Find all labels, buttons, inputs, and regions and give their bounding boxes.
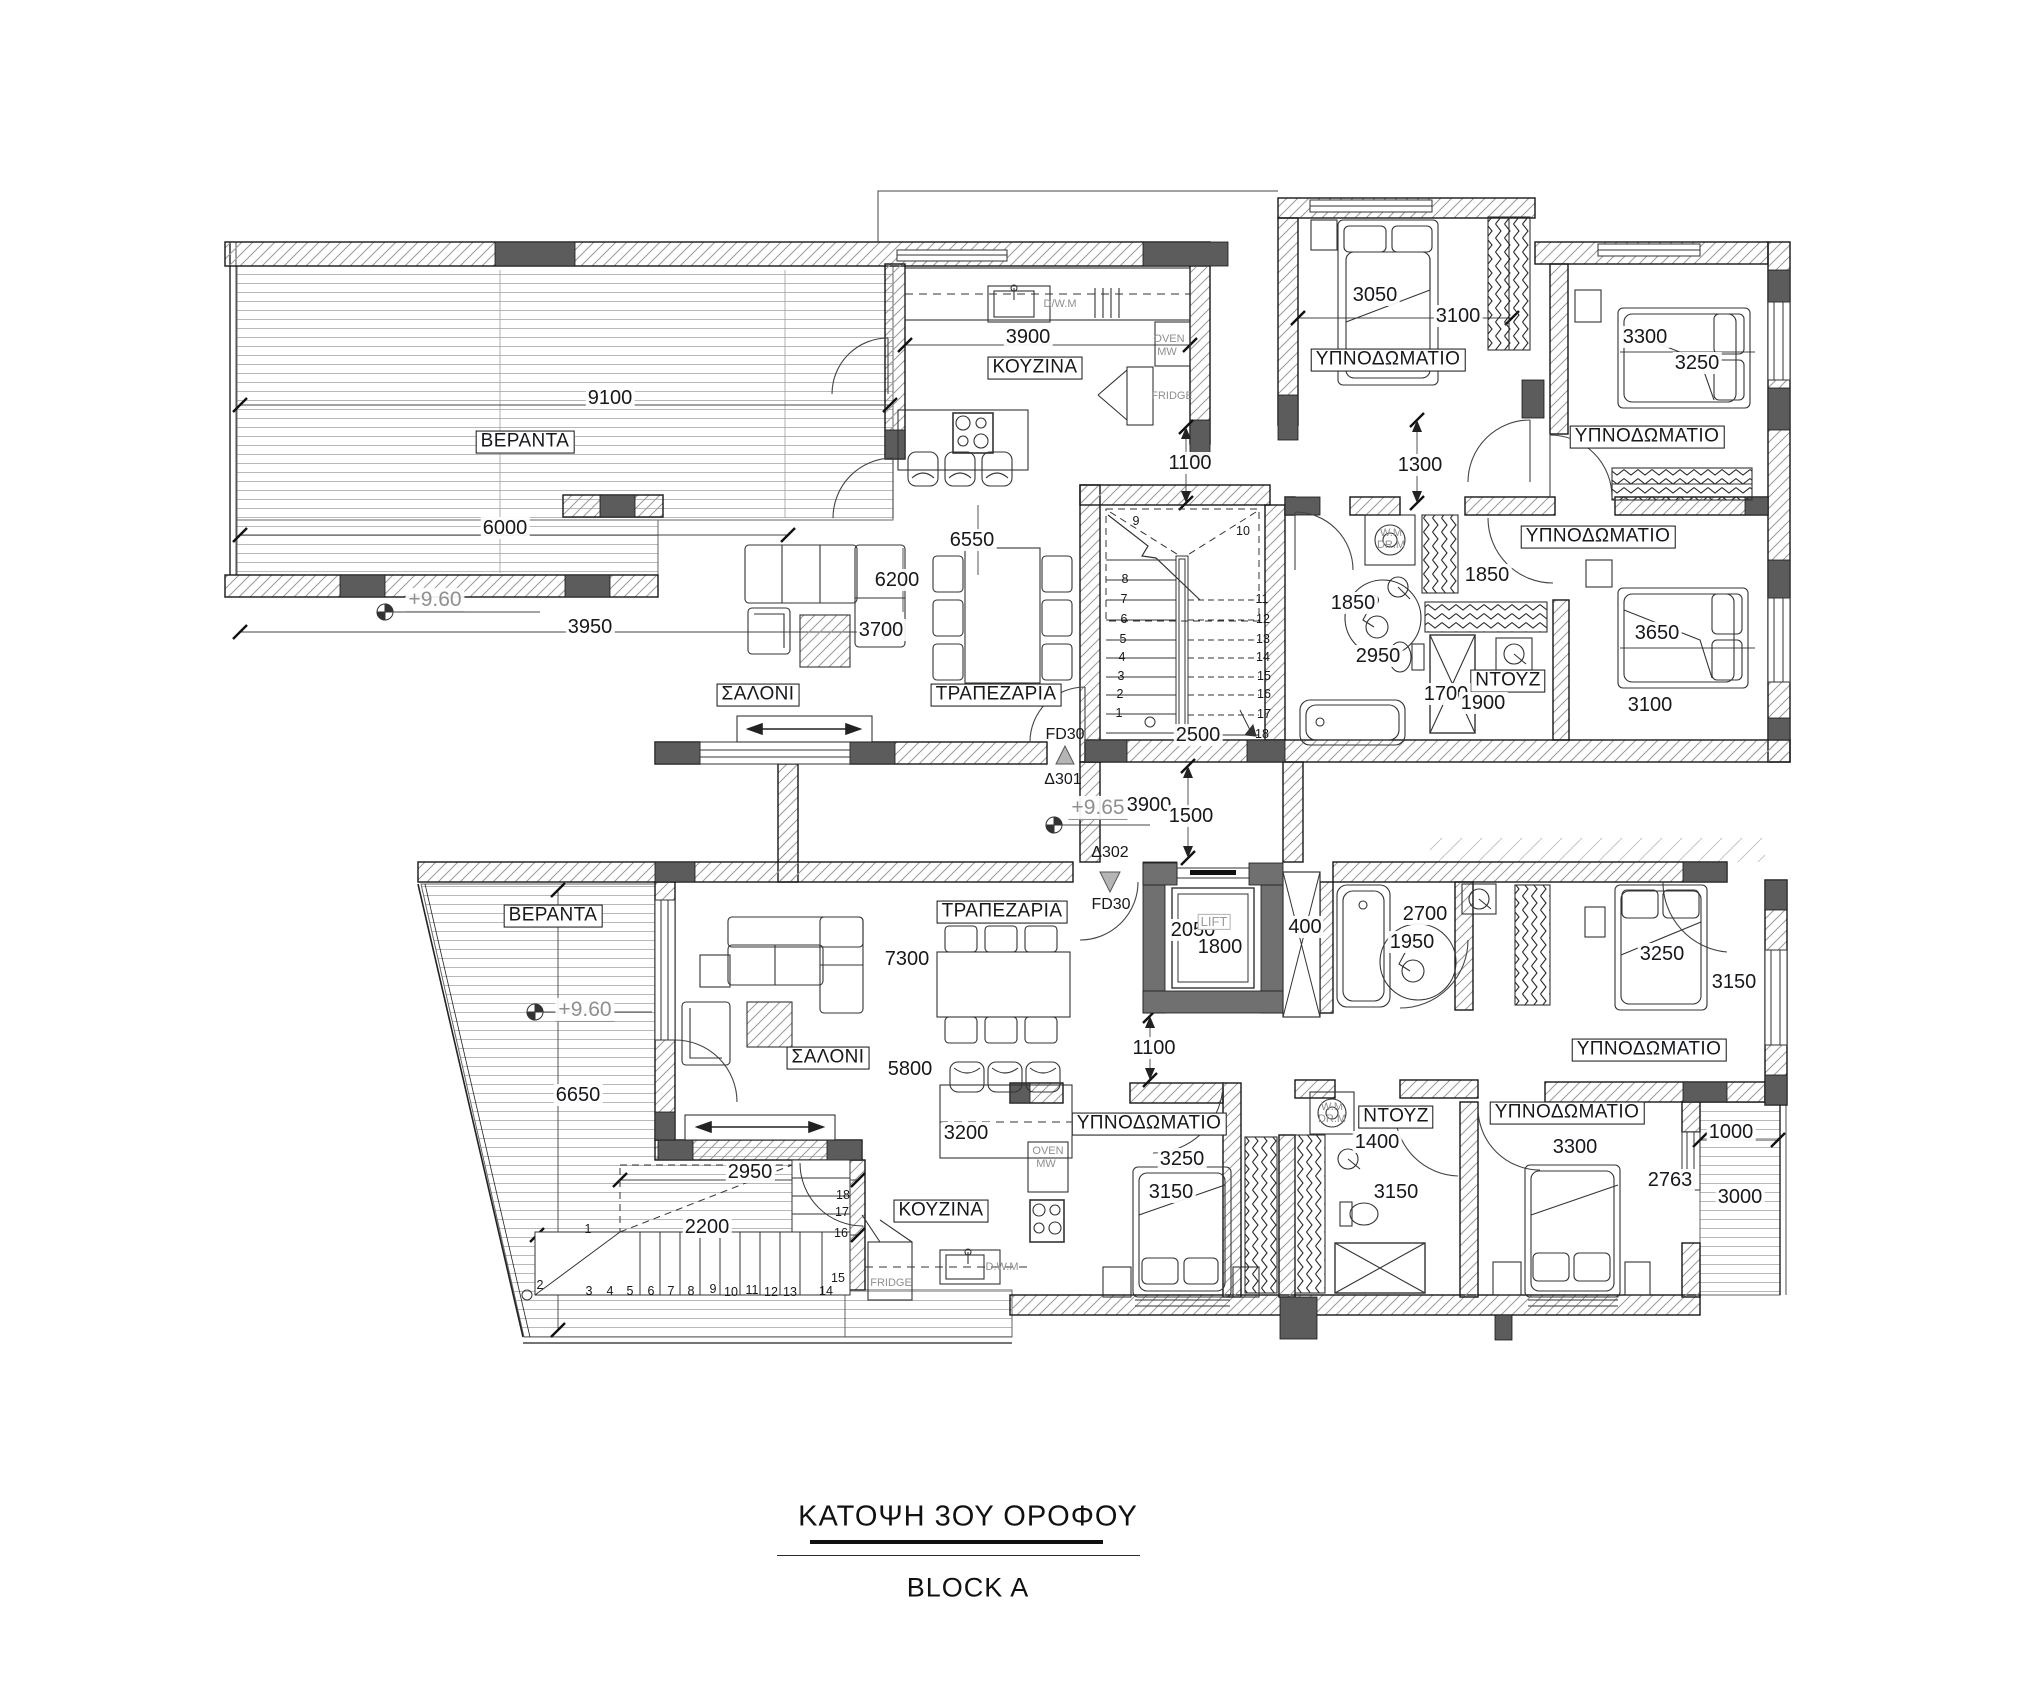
roof-outline [878, 191, 1278, 242]
room-label-bedroom-2: ΥΠΝΟΔΩΜΑΤΙΟ [1570, 426, 1725, 449]
dimension-label: 3700 [857, 619, 906, 641]
veranda-deck-top [230, 242, 893, 575]
title-underline-thin [777, 1555, 1140, 1556]
stair-number: 17 [1257, 708, 1271, 722]
stair-number: 14 [819, 1285, 833, 1299]
dimension-label: 3300 [1551, 1136, 1600, 1158]
living-bottom [682, 917, 863, 1065]
dimension-label: 3150 [1372, 1181, 1421, 1203]
dimension-label: 1900 [1459, 692, 1508, 714]
stair-number: 12 [1256, 613, 1270, 627]
dimension-label: 3000 [1716, 1186, 1765, 1208]
stair-number: 4 [607, 1285, 614, 1299]
appliance-label-fridge: FRIDGE [870, 1277, 912, 1289]
stair-number: 18 [836, 1189, 850, 1203]
living-top [745, 545, 905, 667]
dimension-label: 2950 [1354, 645, 1403, 667]
appliance-label-microwave: MW [1036, 1158, 1056, 1170]
room-label-kitchen-top: ΚΟΥΖΙΝΑ [987, 357, 1082, 380]
stair-number: 16 [834, 1227, 848, 1241]
room-label-dining-top: ΤΡΑΠΕΖΑΡΙΑ [931, 684, 1062, 707]
title-underline-thick [810, 1540, 1103, 1544]
level-label: +9.60 [555, 998, 614, 1022]
roof-hatch-strip [1430, 838, 1765, 862]
dimension-label: 3150 [1710, 971, 1759, 993]
dimension-label: 6650 [554, 1084, 603, 1106]
drawing-title: ΚΑΤΟΨΗ 3ΟΥ ΟΡΟΦΟΥ [798, 1501, 1138, 1534]
dimension-label: 1500 [1167, 805, 1216, 827]
stair-number: 8 [1122, 573, 1129, 587]
stair-number: 12 [764, 1286, 778, 1300]
dimension-label: 2950 [726, 1161, 775, 1183]
stair-number: 7 [668, 1285, 675, 1299]
room-label-shower-bottom: ΝΤΟΥΖ [1358, 1106, 1433, 1129]
dimension-label: 1850 [1329, 592, 1378, 614]
appliance-label-dishwasher: D.W.M [986, 1261, 1019, 1273]
stair-number: 6 [648, 1285, 655, 1299]
room-label-shower-top: ΝΤΟΥΖ [1470, 670, 1545, 693]
dimension-label: 3900 [1004, 326, 1053, 348]
stair-number: 16 [1257, 688, 1271, 702]
dimension-label: 3250 [1638, 943, 1687, 965]
room-label-bedroom-3: ΥΠΝΟΔΩΜΑΤΙΟ [1521, 526, 1676, 549]
fire-door-label: FD30 [1091, 896, 1130, 914]
stair-number: 8 [688, 1285, 695, 1299]
stair-number: 5 [627, 1285, 634, 1299]
stair-number: 3 [1118, 670, 1125, 684]
dimension-label: 2500 [1174, 724, 1223, 746]
stairwell-top [1106, 509, 1259, 738]
stair-number: 18 [1255, 728, 1269, 742]
dimension-label: 2763 [1646, 1169, 1695, 1191]
stair-number: 9 [710, 1283, 717, 1297]
dimension-label: 3050 [1351, 284, 1400, 306]
stair-number: 4 [1119, 651, 1126, 665]
dimension-label: 3250 [1673, 352, 1722, 374]
appliance-label-dryer: DR.M [1318, 1113, 1346, 1125]
stair-number: 14 [1256, 651, 1270, 665]
dimension-label: 2200 [683, 1216, 732, 1238]
dimension-label: 3150 [1147, 1181, 1196, 1203]
dining-top [933, 548, 1072, 683]
stair-number: 2 [537, 1279, 544, 1293]
room-label-bedroom-5: ΥΠΝΟΔΩΜΑΤΙΟ [1572, 1039, 1727, 1062]
level-label: +9.65 [1068, 796, 1127, 820]
room-label-veranda-top: ΒΕΡΑΝΤΑ [476, 431, 575, 454]
dimension-label: 6200 [873, 569, 922, 591]
dimension-label: 1300 [1396, 454, 1445, 476]
appliance-label-oven: OVEN [1153, 333, 1184, 345]
dimension-label: 3250 [1158, 1148, 1207, 1170]
dimension-label: 3950 [566, 616, 615, 638]
level-label: +9.60 [405, 588, 464, 612]
stair-number: 11 [746, 1284, 759, 1298]
dimension-label: 7300 [883, 948, 932, 970]
dimension-label: 400 [1286, 916, 1323, 938]
drawing-subtitle: BLOCK A [907, 1573, 1030, 1604]
dimension-label: 6000 [481, 517, 530, 539]
door-tag-301: Δ301 [1044, 771, 1081, 789]
appliance-label-oven: OVEN [1032, 1145, 1063, 1157]
stair-number: 6 [1121, 613, 1128, 627]
room-label-dining-bottom: ΤΡΑΠΕΖΑΡΙΑ [937, 901, 1068, 924]
stair-number: 2 [1117, 688, 1124, 702]
stair-number: 10 [724, 1286, 738, 1300]
room-label-living-bottom: ΣΑΛΟΝΙ [787, 1047, 870, 1070]
dimension-label: 1950 [1388, 931, 1437, 953]
appliance-label-microwave: MW [1157, 346, 1177, 358]
room-label-living-top: ΣΑΛΟΝΙ [717, 684, 800, 707]
room-label-bedroom-4: ΥΠΝΟΔΩΜΑΤΙΟ [1072, 1113, 1227, 1136]
dimension-label: 1400 [1353, 1131, 1402, 1153]
dimension-label: 1100 [1166, 452, 1213, 474]
lift-label: LIFT [1198, 914, 1231, 930]
floor-plan-canvas: ΒΕΡΑΝΤΑΚΟΥΖΙΝΑΥΠΝΟΔΩΜΑΤΙΟΥΠΝΟΔΩΜΑΤΙΟΥΠΝΟ… [0, 0, 2036, 1684]
dimension-label: 2700 [1401, 903, 1450, 925]
door-tag-302: Δ302 [1091, 844, 1128, 862]
stair-number: 5 [1120, 633, 1127, 647]
room-label-bedroom-6: ΥΠΝΟΔΩΜΑΤΙΟ [1490, 1102, 1645, 1125]
room-label-bedroom-1: ΥΠΝΟΔΩΜΑΤΙΟ [1311, 349, 1466, 372]
appliance-label-dishwasher: D/W.M [1044, 298, 1077, 310]
appliance-label-washer: W.M [1321, 1101, 1343, 1113]
dining-bottom [937, 926, 1070, 1043]
dimension-label: 9100 [586, 387, 635, 409]
dimension-label: 1850 [1463, 564, 1512, 586]
stair-number: 10 [1236, 525, 1250, 539]
dimension-label: 3650 [1633, 622, 1682, 644]
dimension-label: 3200 [942, 1122, 991, 1144]
fire-door-label: FD30 [1045, 726, 1084, 744]
stair-number: 3 [586, 1285, 593, 1299]
dimension-label: 3100 [1434, 305, 1483, 327]
dimension-label: 5800 [886, 1058, 935, 1080]
dimension-label: 1800 [1196, 936, 1245, 958]
appliance-label-washer: W.M [1380, 527, 1402, 539]
appliance-label-fridge: FRIDGE [1151, 390, 1193, 402]
stair-number: 1 [585, 1223, 592, 1237]
stair-number: 7 [1121, 593, 1128, 607]
dimension-label: 3300 [1621, 326, 1670, 348]
stair-number: 9 [1133, 515, 1140, 529]
room-label-kitchen-bottom: ΚΟΥΖΙΝΑ [893, 1200, 988, 1223]
stair-number: 15 [831, 1272, 845, 1286]
stair-number: 13 [783, 1286, 797, 1300]
stair-number: 1 [1116, 707, 1123, 721]
stair-number: 17 [835, 1206, 849, 1220]
appliance-label-dryer: DR.M [1377, 539, 1405, 551]
plan-linework [0, 0, 2036, 1684]
dimension-label: 3100 [1626, 694, 1675, 716]
room-label-veranda-bottom: ΒΕΡΑΝΤΑ [504, 905, 603, 928]
stair-number: 13 [1256, 633, 1270, 647]
dimension-label: 1000 [1707, 1121, 1756, 1143]
dimension-label: 1100 [1130, 1037, 1177, 1059]
stair-number: 15 [1257, 670, 1271, 684]
dimension-label: 6550 [948, 529, 997, 551]
stair-number: 11 [1256, 593, 1269, 607]
